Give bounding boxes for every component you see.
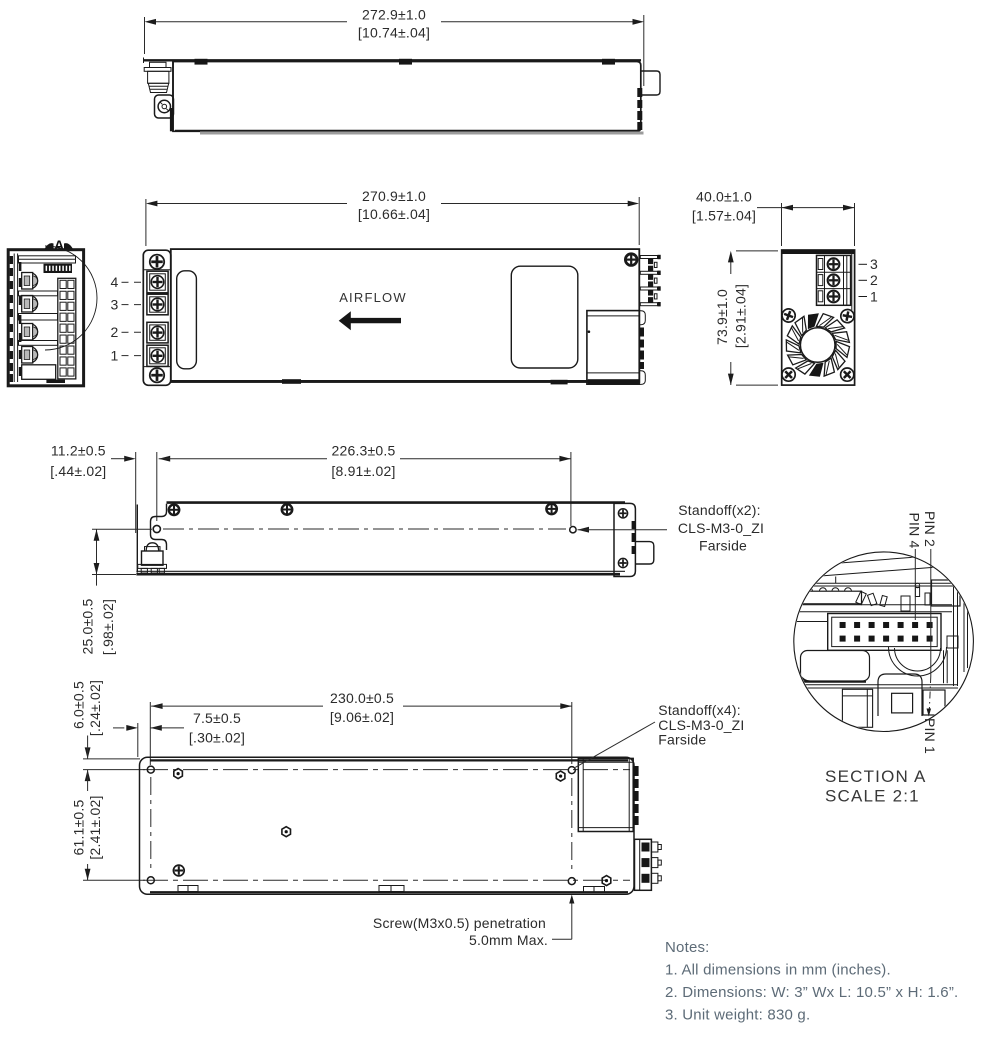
svg-text:5.0mm Max.: 5.0mm Max. <box>469 932 548 948</box>
svg-text:[2.91±.04]: [2.91±.04] <box>732 284 748 348</box>
svg-text:2: 2 <box>870 272 878 288</box>
svg-text:[9.06±.02]: [9.06±.02] <box>330 709 394 725</box>
svg-text:226.3±0.5: 226.3±0.5 <box>332 442 396 458</box>
svg-text:11.2±0.5: 11.2±0.5 <box>51 442 106 458</box>
svg-text:Farside: Farside <box>699 538 747 554</box>
svg-text:2: 2 <box>111 324 119 340</box>
svg-text:40.0±1.0: 40.0±1.0 <box>696 189 752 205</box>
svg-text:1: 1 <box>111 347 119 363</box>
svg-text:SCALE 2:1: SCALE 2:1 <box>825 786 920 805</box>
svg-text:61.1±0.5: 61.1±0.5 <box>70 799 86 855</box>
svg-text:7.5±0.5: 7.5±0.5 <box>193 710 241 726</box>
svg-text:73.9±1.0: 73.9±1.0 <box>714 289 730 345</box>
svg-text:[10.66±.04]: [10.66±.04] <box>358 206 430 222</box>
svg-text:230.0±0.5: 230.0±0.5 <box>330 690 394 706</box>
svg-text:PIN 4: PIN 4 <box>907 512 923 548</box>
svg-text:3. Unit weight: 830 g.: 3. Unit weight: 830 g. <box>665 1007 810 1024</box>
svg-text:6.0±0.5: 6.0±0.5 <box>70 681 86 729</box>
svg-text:1. All dimensions in mm (inche: 1. All dimensions in mm (inches). <box>665 962 891 979</box>
svg-text:[.24±.02]: [.24±.02] <box>87 680 103 736</box>
svg-text:AIRFLOW: AIRFLOW <box>339 290 407 305</box>
svg-text:Standoff(x2):: Standoff(x2): <box>678 502 761 518</box>
svg-text:[.98±.02]: [.98±.02] <box>100 599 116 655</box>
svg-text:SECTION A: SECTION A <box>825 767 927 786</box>
svg-text:[.30±.02]: [.30±.02] <box>189 729 245 745</box>
svg-text:[10.74±.04]: [10.74±.04] <box>358 25 430 41</box>
svg-text:[2.41±.02]: [2.41±.02] <box>87 795 103 859</box>
svg-text:Standoff(x4):: Standoff(x4): <box>658 702 741 718</box>
svg-text:[8.91±.02]: [8.91±.02] <box>331 463 395 479</box>
svg-text:25.0±0.5: 25.0±0.5 <box>80 598 96 654</box>
svg-text:PIN 2: PIN 2 <box>922 511 938 547</box>
svg-text:272.9±1.0: 272.9±1.0 <box>362 7 426 23</box>
svg-text:3: 3 <box>111 296 119 312</box>
svg-text:Farside: Farside <box>658 732 706 748</box>
svg-text:3: 3 <box>870 256 878 272</box>
svg-text:[.44±.02]: [.44±.02] <box>50 463 106 479</box>
svg-text:1: 1 <box>870 288 878 304</box>
svg-text:Screw(M3x0.5) penetration: Screw(M3x0.5) penetration <box>373 915 546 931</box>
svg-text:PIN 1: PIN 1 <box>922 718 938 754</box>
svg-text:270.9±1.0: 270.9±1.0 <box>362 188 426 204</box>
svg-text:Notes:: Notes: <box>665 939 710 956</box>
svg-text:2. Dimensions: W: 3” Wx L: 10.: 2. Dimensions: W: 3” Wx L: 10.5” x H: 1.… <box>665 984 958 1001</box>
svg-text:CLS-M3-0_ZI: CLS-M3-0_ZI <box>678 520 764 536</box>
svg-text:[1.57±.04]: [1.57±.04] <box>692 208 756 224</box>
svg-text:4: 4 <box>111 274 119 290</box>
